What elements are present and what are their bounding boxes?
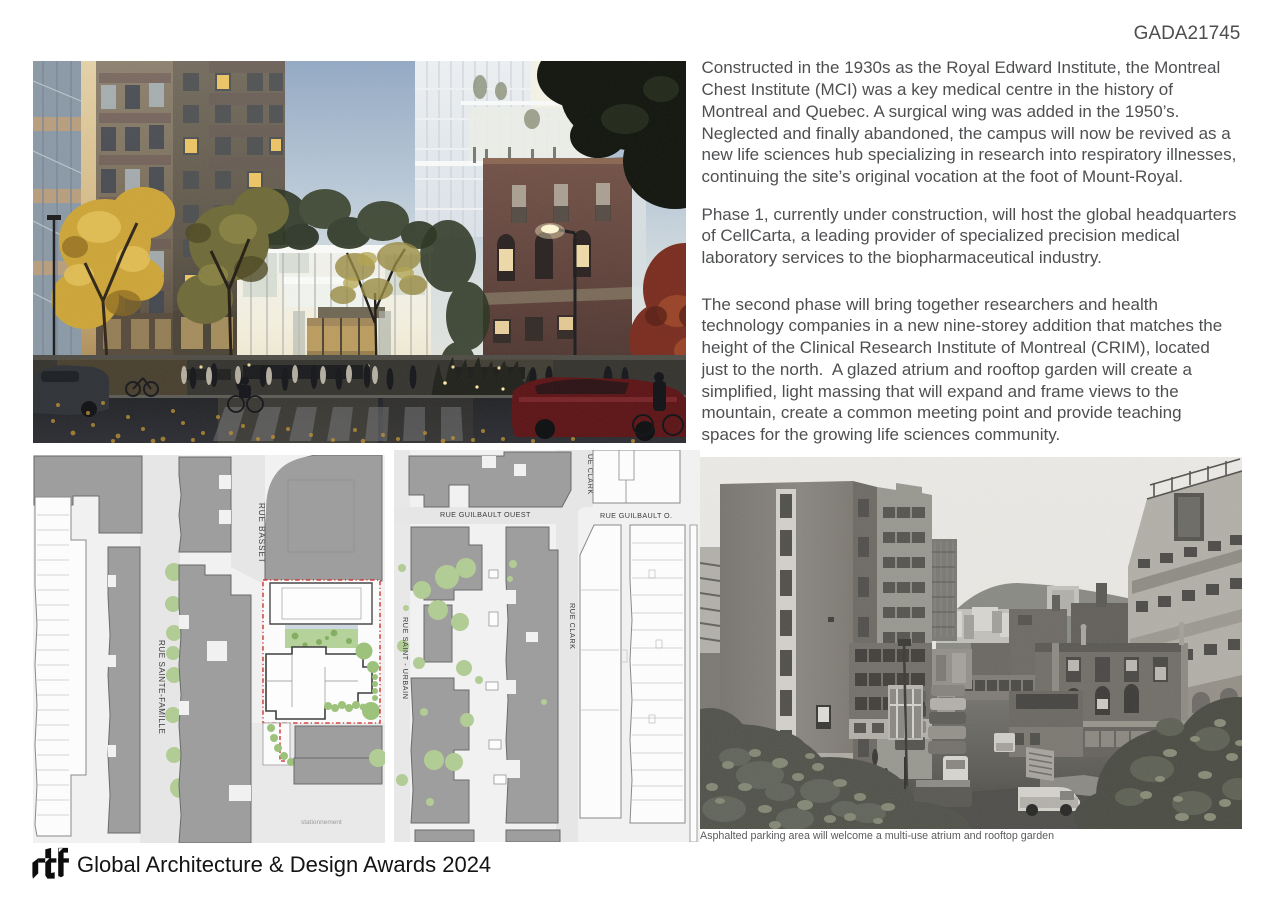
svg-text:RUE SAINTE-FAMILLE: RUE SAINTE-FAMILLE <box>157 640 166 734</box>
svg-text:RUE GUILBAULT O.: RUE GUILBAULT O. <box>600 511 672 520</box>
svg-text:stationnement: stationnement <box>301 819 342 826</box>
svg-text:RUE CLARK: RUE CLARK <box>568 603 577 650</box>
svg-text:RUE GUILBAULT OUEST: RUE GUILBAULT OUEST <box>440 510 531 519</box>
svg-text:RUE SAINT - URBAIN: RUE SAINT - URBAIN <box>401 617 410 700</box>
